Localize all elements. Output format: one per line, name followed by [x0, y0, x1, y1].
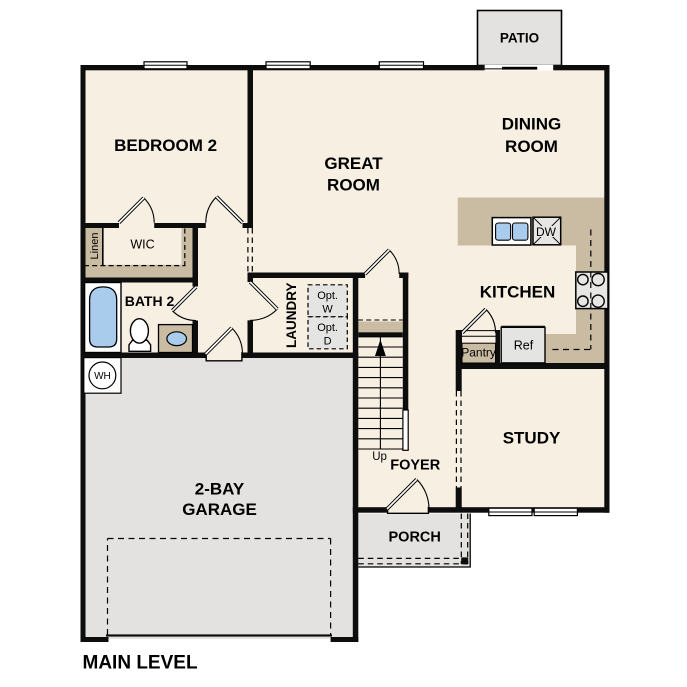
svg-text:BATH 2: BATH 2 — [125, 293, 175, 309]
svg-text:Opt.: Opt. — [317, 322, 338, 334]
svg-text:ROOM: ROOM — [327, 176, 380, 195]
svg-text:PATIO: PATIO — [500, 31, 539, 46]
svg-text:Linen: Linen — [89, 233, 101, 260]
svg-text:DINING: DINING — [502, 115, 562, 134]
svg-text:D: D — [324, 336, 332, 348]
svg-text:DW: DW — [536, 225, 557, 239]
svg-text:WH: WH — [94, 371, 111, 382]
svg-text:FOYER: FOYER — [390, 458, 440, 474]
svg-text:GREAT: GREAT — [324, 154, 383, 173]
svg-text:BEDROOM 2: BEDROOM 2 — [114, 136, 217, 155]
svg-text:GARAGE: GARAGE — [182, 500, 257, 519]
svg-text:2-BAY: 2-BAY — [195, 480, 245, 499]
svg-text:WIC: WIC — [130, 238, 154, 252]
svg-text:STUDY: STUDY — [503, 429, 561, 448]
svg-text:W: W — [322, 304, 333, 316]
svg-text:PORCH: PORCH — [389, 529, 441, 545]
svg-text:ROOM: ROOM — [505, 137, 558, 156]
svg-text:Ref: Ref — [514, 339, 534, 353]
svg-text:Pantry: Pantry — [461, 345, 496, 359]
svg-text:Opt.: Opt. — [317, 290, 338, 302]
svg-text:KITCHEN: KITCHEN — [480, 283, 556, 302]
svg-text:Up: Up — [372, 451, 387, 463]
svg-text:MAIN LEVEL: MAIN LEVEL — [83, 653, 198, 674]
svg-text:LAUNDRY: LAUNDRY — [284, 283, 299, 349]
